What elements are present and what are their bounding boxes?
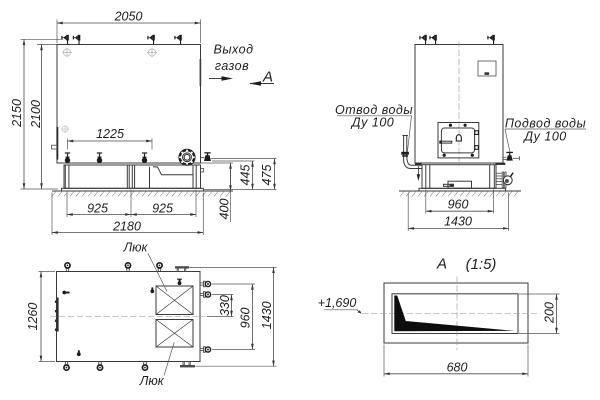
- svg-text:475: 475: [260, 165, 274, 186]
- svg-text:1225: 1225: [96, 127, 124, 141]
- svg-text:445: 445: [238, 165, 252, 186]
- svg-text:680: 680: [447, 360, 468, 374]
- svg-text:газов: газов: [215, 59, 249, 73]
- svg-text:200: 200: [543, 302, 557, 324]
- svg-text:925: 925: [152, 202, 173, 216]
- svg-text:(1:5): (1:5): [466, 256, 497, 273]
- svg-text:Подвод воды: Подвод воды: [505, 117, 586, 131]
- svg-text:Люк: Люк: [139, 374, 165, 388]
- svg-text:2180: 2180: [112, 220, 141, 234]
- svg-text:960: 960: [448, 198, 469, 212]
- svg-text:2150: 2150: [10, 99, 24, 128]
- svg-text:+1,690: +1,690: [318, 296, 357, 310]
- svg-text:Ду 100: Ду 100: [350, 116, 395, 130]
- svg-text:400: 400: [218, 199, 232, 220]
- svg-text:Ду 100: Ду 100: [522, 130, 567, 144]
- svg-text:1430: 1430: [444, 215, 472, 229]
- svg-text:2100: 2100: [29, 100, 43, 129]
- svg-text:А: А: [262, 69, 273, 86]
- svg-text:Выход: Выход: [213, 43, 253, 57]
- svg-text:925: 925: [87, 202, 108, 216]
- svg-text:330: 330: [218, 295, 232, 316]
- svg-text:Люк: Люк: [123, 241, 149, 255]
- svg-text:960: 960: [239, 307, 253, 328]
- svg-text:2050: 2050: [114, 10, 143, 24]
- svg-text:1260: 1260: [26, 303, 40, 331]
- svg-text:1430: 1430: [260, 301, 274, 329]
- svg-text:А: А: [436, 256, 447, 273]
